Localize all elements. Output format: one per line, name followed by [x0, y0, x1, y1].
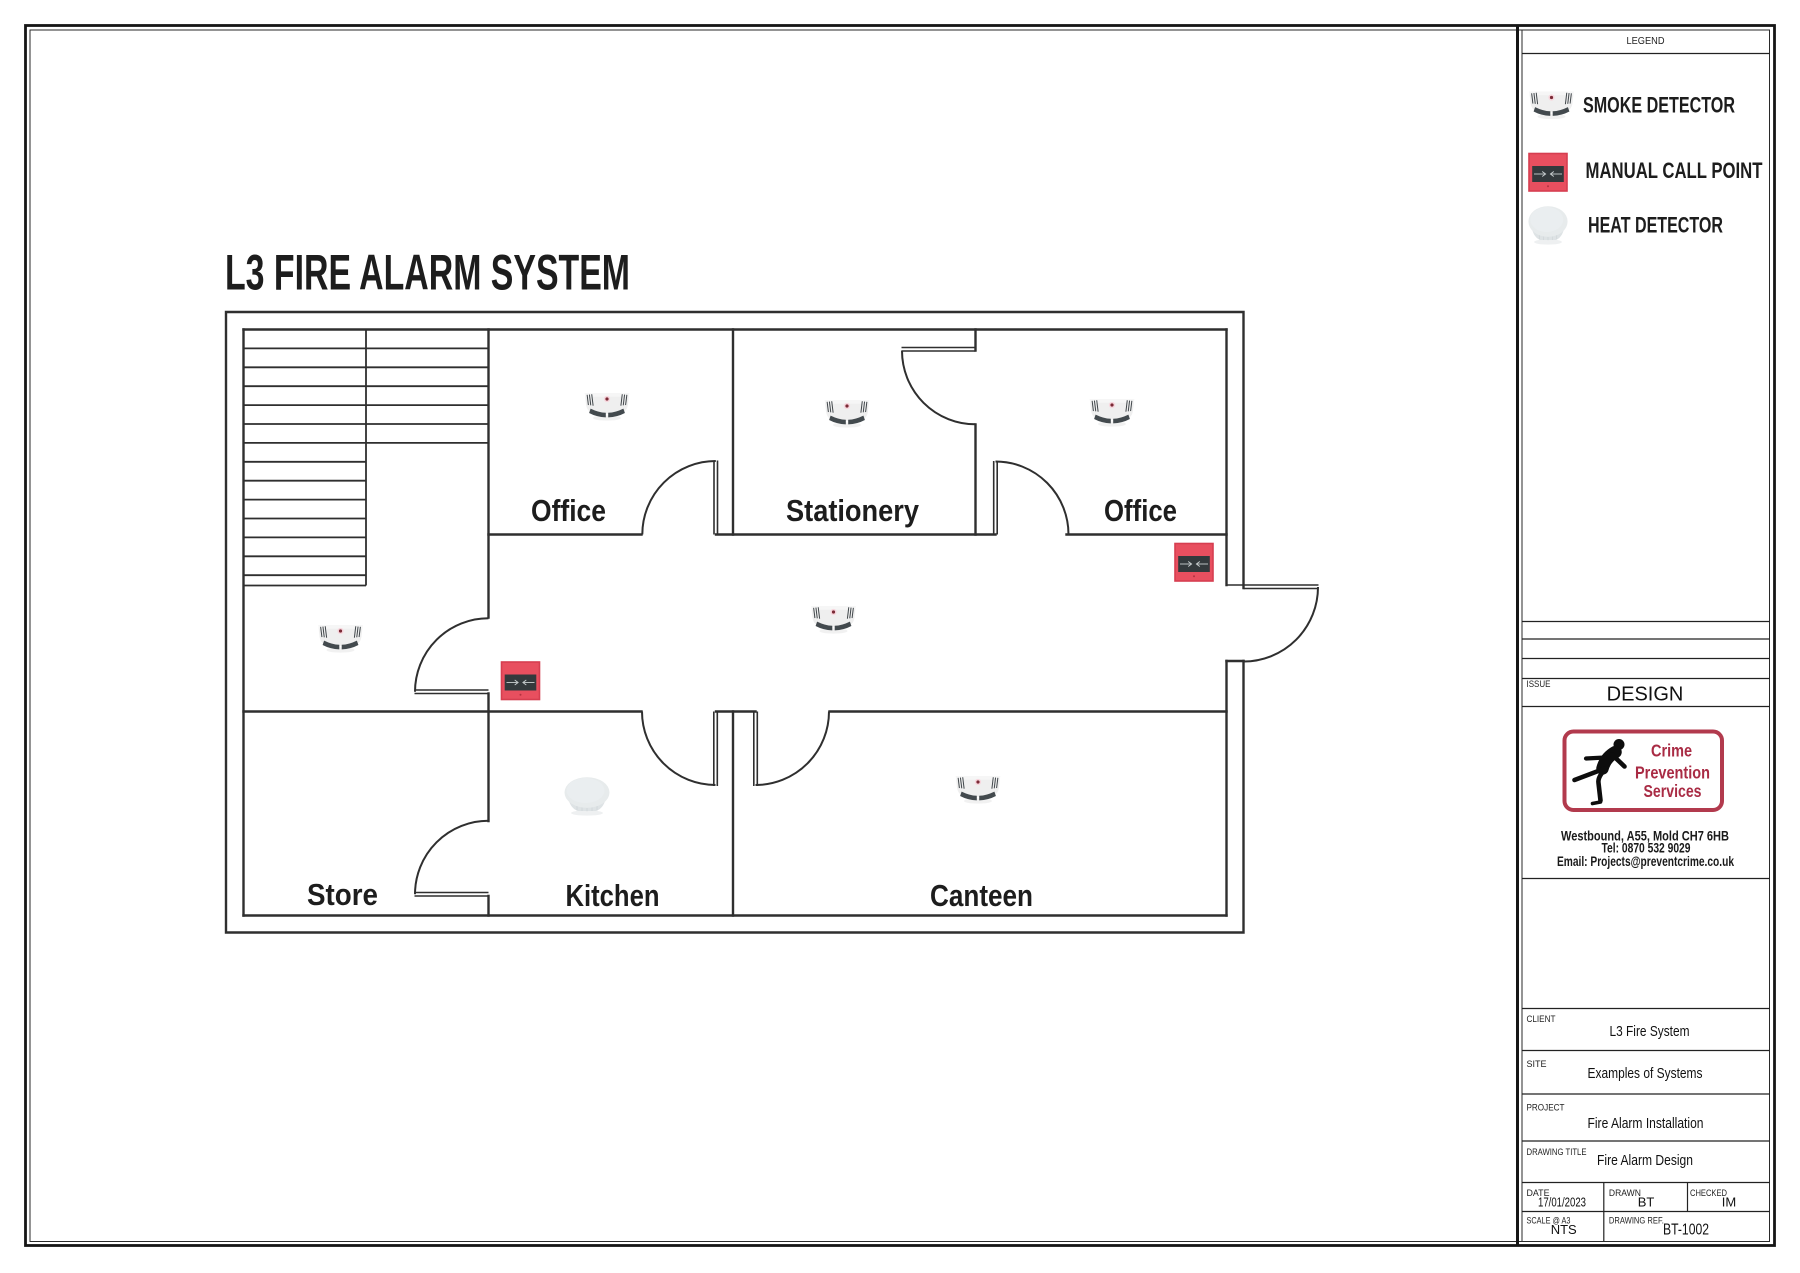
- svg-text:BT: BT: [1638, 1195, 1655, 1210]
- svg-text:ISSUE: ISSUE: [1527, 679, 1551, 689]
- svg-text:HEAT DETECTOR: HEAT DETECTOR: [1588, 213, 1723, 238]
- svg-text:Fire Alarm Design: Fire Alarm Design: [1597, 1152, 1693, 1169]
- svg-text:L3 Fire System: L3 Fire System: [1610, 1023, 1690, 1040]
- svg-text:DRAWN: DRAWN: [1609, 1188, 1641, 1198]
- svg-text:L3 FIRE ALARM SYSTEM: L3 FIRE ALARM SYSTEM: [225, 245, 630, 301]
- svg-text:Canteen: Canteen: [930, 878, 1033, 913]
- svg-text:Email: Projects@preventcrime.c: Email: Projects@preventcrime.co.uk: [1557, 854, 1734, 869]
- svg-text:Services: Services: [1644, 781, 1702, 801]
- svg-text:DESIGN: DESIGN: [1607, 684, 1684, 706]
- svg-text:SITE: SITE: [1527, 1059, 1547, 1069]
- svg-text:BT-1002: BT-1002: [1663, 1222, 1709, 1239]
- svg-text:Fire Alarm Installation: Fire Alarm Installation: [1588, 1115, 1704, 1132]
- svg-text:Stationery: Stationery: [786, 493, 920, 528]
- svg-text:Office: Office: [1104, 493, 1177, 528]
- svg-text:Crime: Crime: [1651, 741, 1692, 761]
- svg-text:Office: Office: [531, 493, 606, 528]
- svg-text:DRAWING REF.: DRAWING REF.: [1609, 1216, 1664, 1226]
- svg-text:LEGEND: LEGEND: [1627, 36, 1665, 47]
- svg-text:17/01/2023: 17/01/2023: [1538, 1195, 1586, 1210]
- svg-text:NTS: NTS: [1551, 1222, 1577, 1237]
- svg-text:IM: IM: [1722, 1195, 1736, 1210]
- svg-text:SMOKE DETECTOR: SMOKE DETECTOR: [1583, 93, 1735, 118]
- svg-text:PROJECT: PROJECT: [1527, 1103, 1565, 1113]
- svg-text:CLIENT: CLIENT: [1527, 1014, 1556, 1024]
- svg-text:MANUAL CALL POINT: MANUAL CALL POINT: [1586, 158, 1763, 183]
- svg-text:DRAWING TITLE: DRAWING TITLE: [1527, 1147, 1587, 1157]
- svg-text:Examples of Systems: Examples of Systems: [1588, 1065, 1703, 1082]
- svg-text:Kitchen: Kitchen: [566, 878, 660, 913]
- svg-text:Prevention: Prevention: [1635, 763, 1710, 783]
- svg-text:Store: Store: [307, 877, 378, 912]
